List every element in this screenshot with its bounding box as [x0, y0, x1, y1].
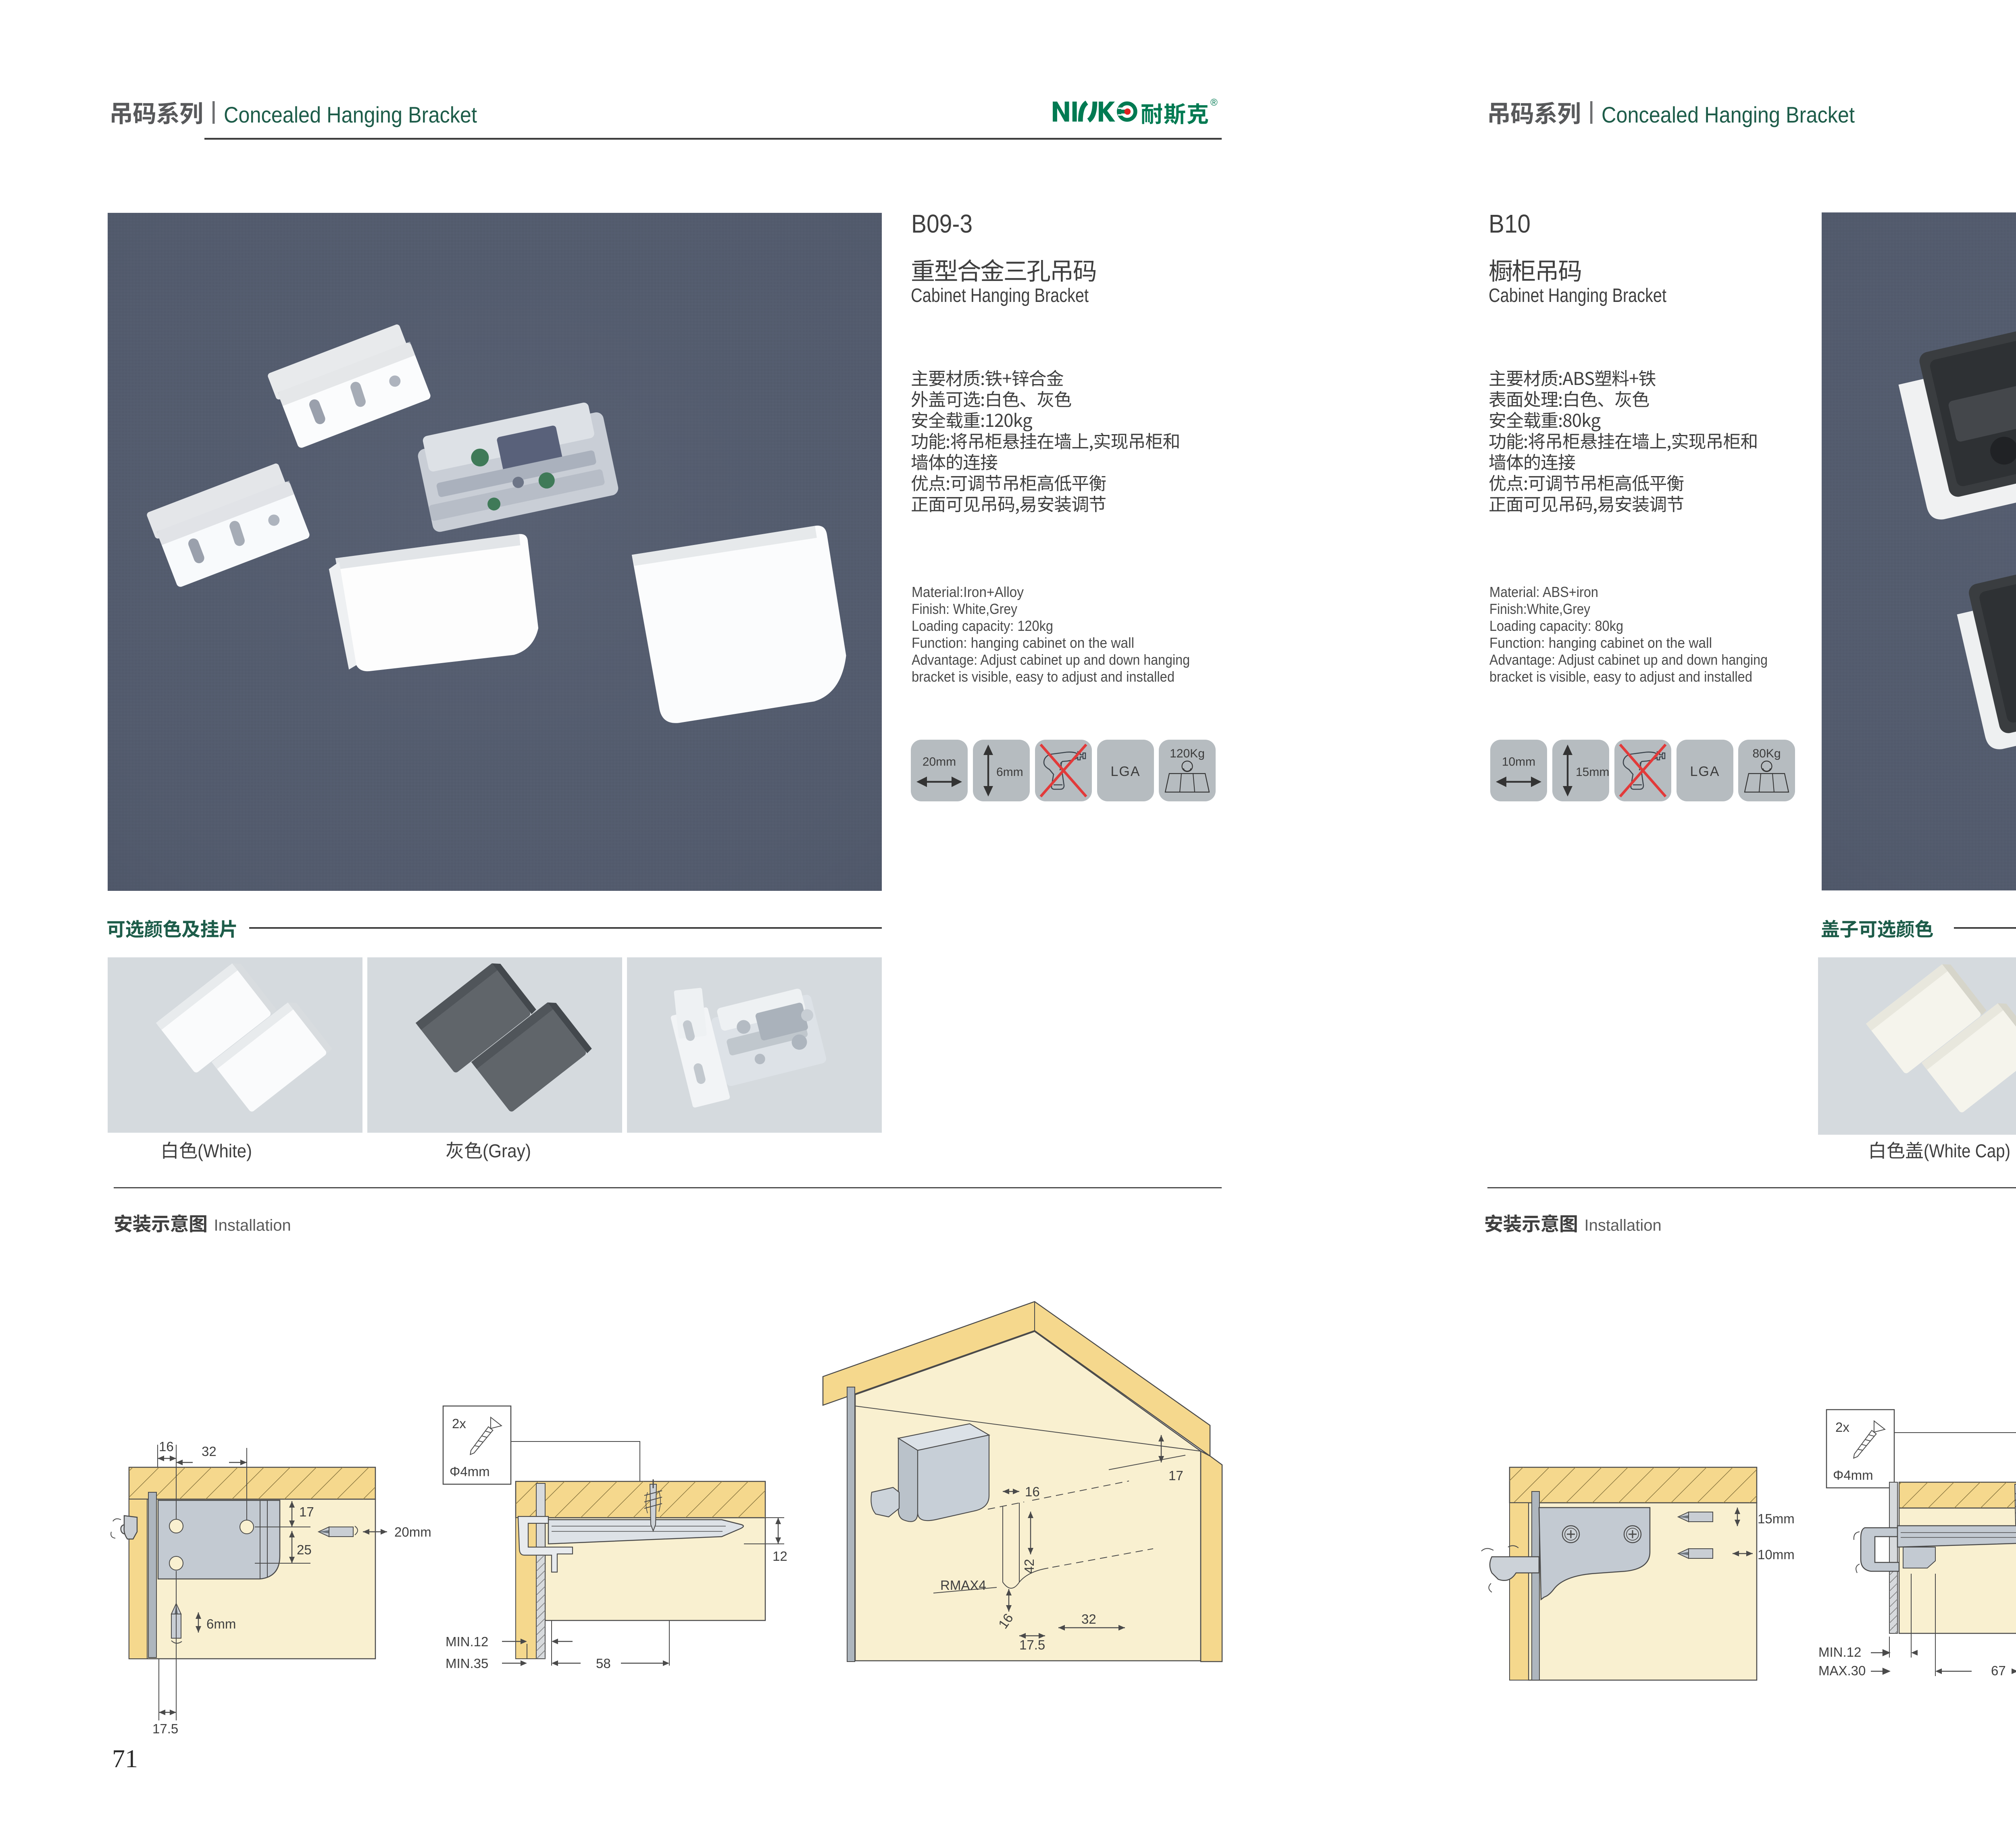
- svg-text:120Kg: 120Kg: [1170, 747, 1205, 760]
- svg-text:6mm: 6mm: [206, 1616, 236, 1631]
- svg-text:LGA: LGA: [1110, 764, 1140, 779]
- svg-text:Finish:White,Grey: Finish:White,Grey: [1489, 601, 1590, 617]
- svg-text:67: 67: [1991, 1663, 2006, 1678]
- svg-text:12: 12: [773, 1549, 787, 1564]
- svg-text:Advantage: Adjust cabinet up a: Advantage: Adjust cabinet up and down ha…: [1489, 651, 1768, 668]
- svg-text:10mm: 10mm: [1502, 755, 1535, 769]
- svg-text:Φ4mm: Φ4mm: [1833, 1468, 1873, 1483]
- svg-text:Φ4mm: Φ4mm: [450, 1464, 490, 1479]
- svg-text:16: 16: [159, 1439, 174, 1454]
- svg-text:Cabinet Hanging Bracket: Cabinet Hanging Bracket: [1489, 285, 1666, 306]
- svg-text:bracket is visible, easy to ad: bracket is visible, easy to adjust and i…: [1489, 668, 1752, 685]
- svg-text:bracket is visible, easy to ad: bracket is visible, easy to adjust and i…: [912, 668, 1175, 685]
- svg-text:71: 71: [112, 1744, 138, 1773]
- svg-text:MIN.12: MIN.12: [1818, 1645, 1861, 1660]
- svg-text:(Gray): (Gray): [483, 1140, 531, 1161]
- svg-text:Cabinet Hanging Bracket: Cabinet Hanging Bracket: [911, 285, 1089, 306]
- svg-text:MAX.30: MAX.30: [1818, 1663, 1866, 1678]
- svg-text:17.5: 17.5: [1019, 1637, 1045, 1652]
- svg-text:15mm: 15mm: [1758, 1511, 1795, 1526]
- svg-text:20mm: 20mm: [394, 1525, 431, 1539]
- svg-text:MIN.35: MIN.35: [446, 1656, 488, 1671]
- svg-text:25: 25: [297, 1542, 312, 1557]
- svg-text:2x: 2x: [452, 1416, 466, 1431]
- svg-text:®: ®: [1210, 97, 1218, 108]
- svg-text:17.5: 17.5: [152, 1721, 178, 1736]
- svg-text:B09-3: B09-3: [911, 209, 973, 238]
- svg-text:Loading capacity: 80kg: Loading capacity: 80kg: [1489, 618, 1623, 634]
- svg-text:RMAX4: RMAX4: [940, 1578, 986, 1593]
- svg-text:B10: B10: [1489, 209, 1531, 238]
- svg-text:Installation: Installation: [214, 1217, 291, 1234]
- svg-text:Function: hanging cabinet on t: Function: hanging cabinet on the wall: [912, 634, 1134, 651]
- svg-text:10mm: 10mm: [1758, 1547, 1795, 1562]
- svg-text:Installation: Installation: [1585, 1217, 1662, 1234]
- svg-text:42: 42: [1022, 1559, 1037, 1574]
- svg-text:2x: 2x: [1835, 1420, 1849, 1435]
- svg-text:32: 32: [202, 1444, 217, 1459]
- svg-text:Concealed Hanging Bracket: Concealed Hanging Bracket: [224, 102, 477, 127]
- svg-text:(White Cap): (White Cap): [1924, 1140, 2010, 1161]
- svg-text:Finish: White,Grey: Finish: White,Grey: [912, 601, 1017, 617]
- svg-text:16: 16: [1025, 1484, 1040, 1499]
- svg-text:15mm: 15mm: [1576, 765, 1609, 779]
- svg-text:Material: ABS+iron: Material: ABS+iron: [1489, 584, 1598, 600]
- svg-text:Function: hanging cabinet on t: Function: hanging cabinet on the wall: [1489, 634, 1712, 651]
- svg-text:Advantage: Adjust cabinet up a: Advantage: Adjust cabinet up and down ha…: [912, 651, 1190, 668]
- svg-text:Material:Iron+Alloy: Material:Iron+Alloy: [912, 584, 1024, 600]
- svg-text:Loading capacity: 120kg: Loading capacity: 120kg: [912, 618, 1053, 634]
- svg-text:MIN.12: MIN.12: [446, 1634, 488, 1649]
- svg-text:17: 17: [1168, 1468, 1183, 1483]
- svg-text:17: 17: [299, 1504, 314, 1519]
- svg-text:Concealed Hanging Bracket: Concealed Hanging Bracket: [1602, 102, 1855, 127]
- svg-text:6mm: 6mm: [996, 765, 1023, 779]
- svg-text:20mm: 20mm: [923, 755, 956, 769]
- svg-text:32: 32: [1081, 1612, 1096, 1627]
- svg-text:LGA: LGA: [1690, 764, 1720, 779]
- svg-text:(White): (White): [198, 1140, 252, 1161]
- svg-text:80Kg: 80Kg: [1752, 747, 1781, 760]
- svg-text:58: 58: [596, 1656, 611, 1671]
